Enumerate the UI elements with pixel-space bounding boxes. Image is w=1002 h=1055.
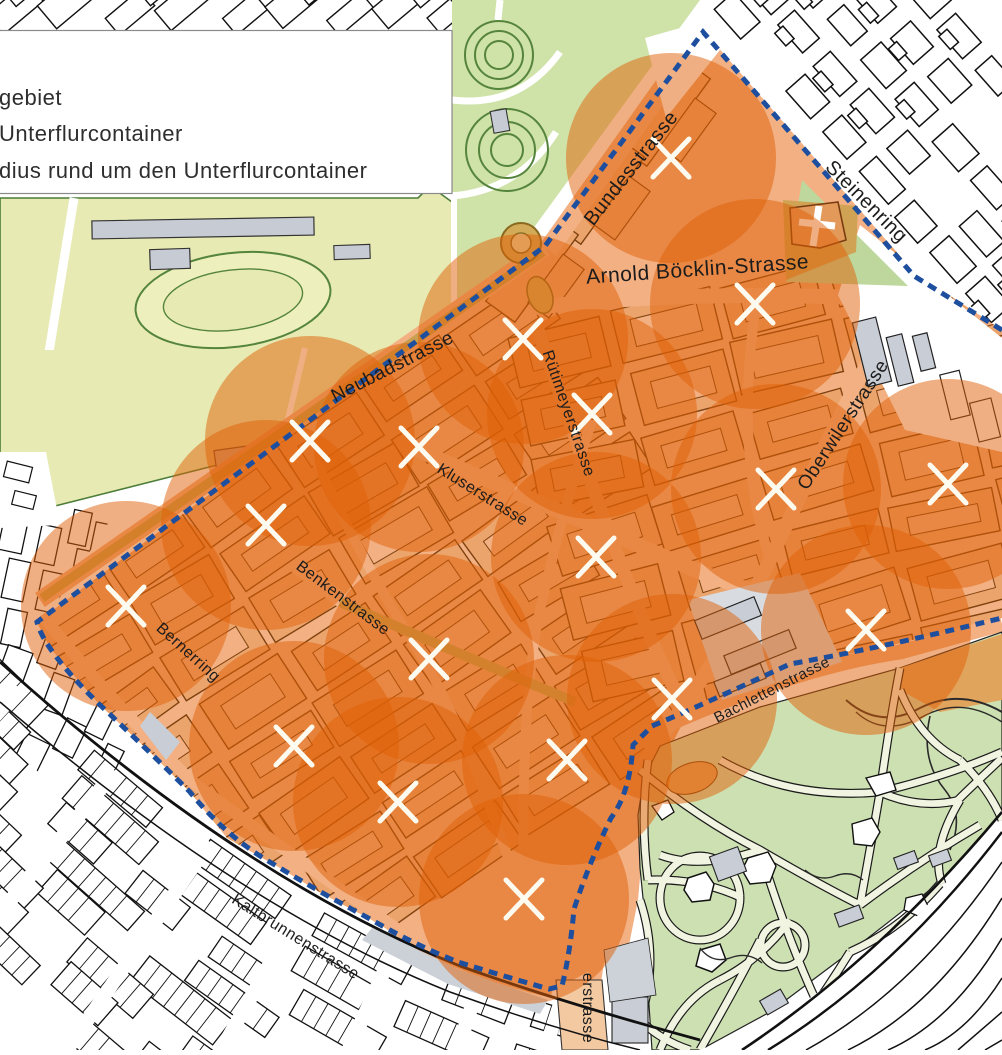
svg-text:dius rund um den Unterflurcont: dius rund um den Unterflurcontainer [0, 158, 367, 183]
svg-text:erstrasse: erstrasse [579, 973, 596, 1043]
svg-text:Unterflurcontainer: Unterflurcontainer [0, 121, 183, 146]
svg-text:gebiet: gebiet [0, 85, 62, 110]
